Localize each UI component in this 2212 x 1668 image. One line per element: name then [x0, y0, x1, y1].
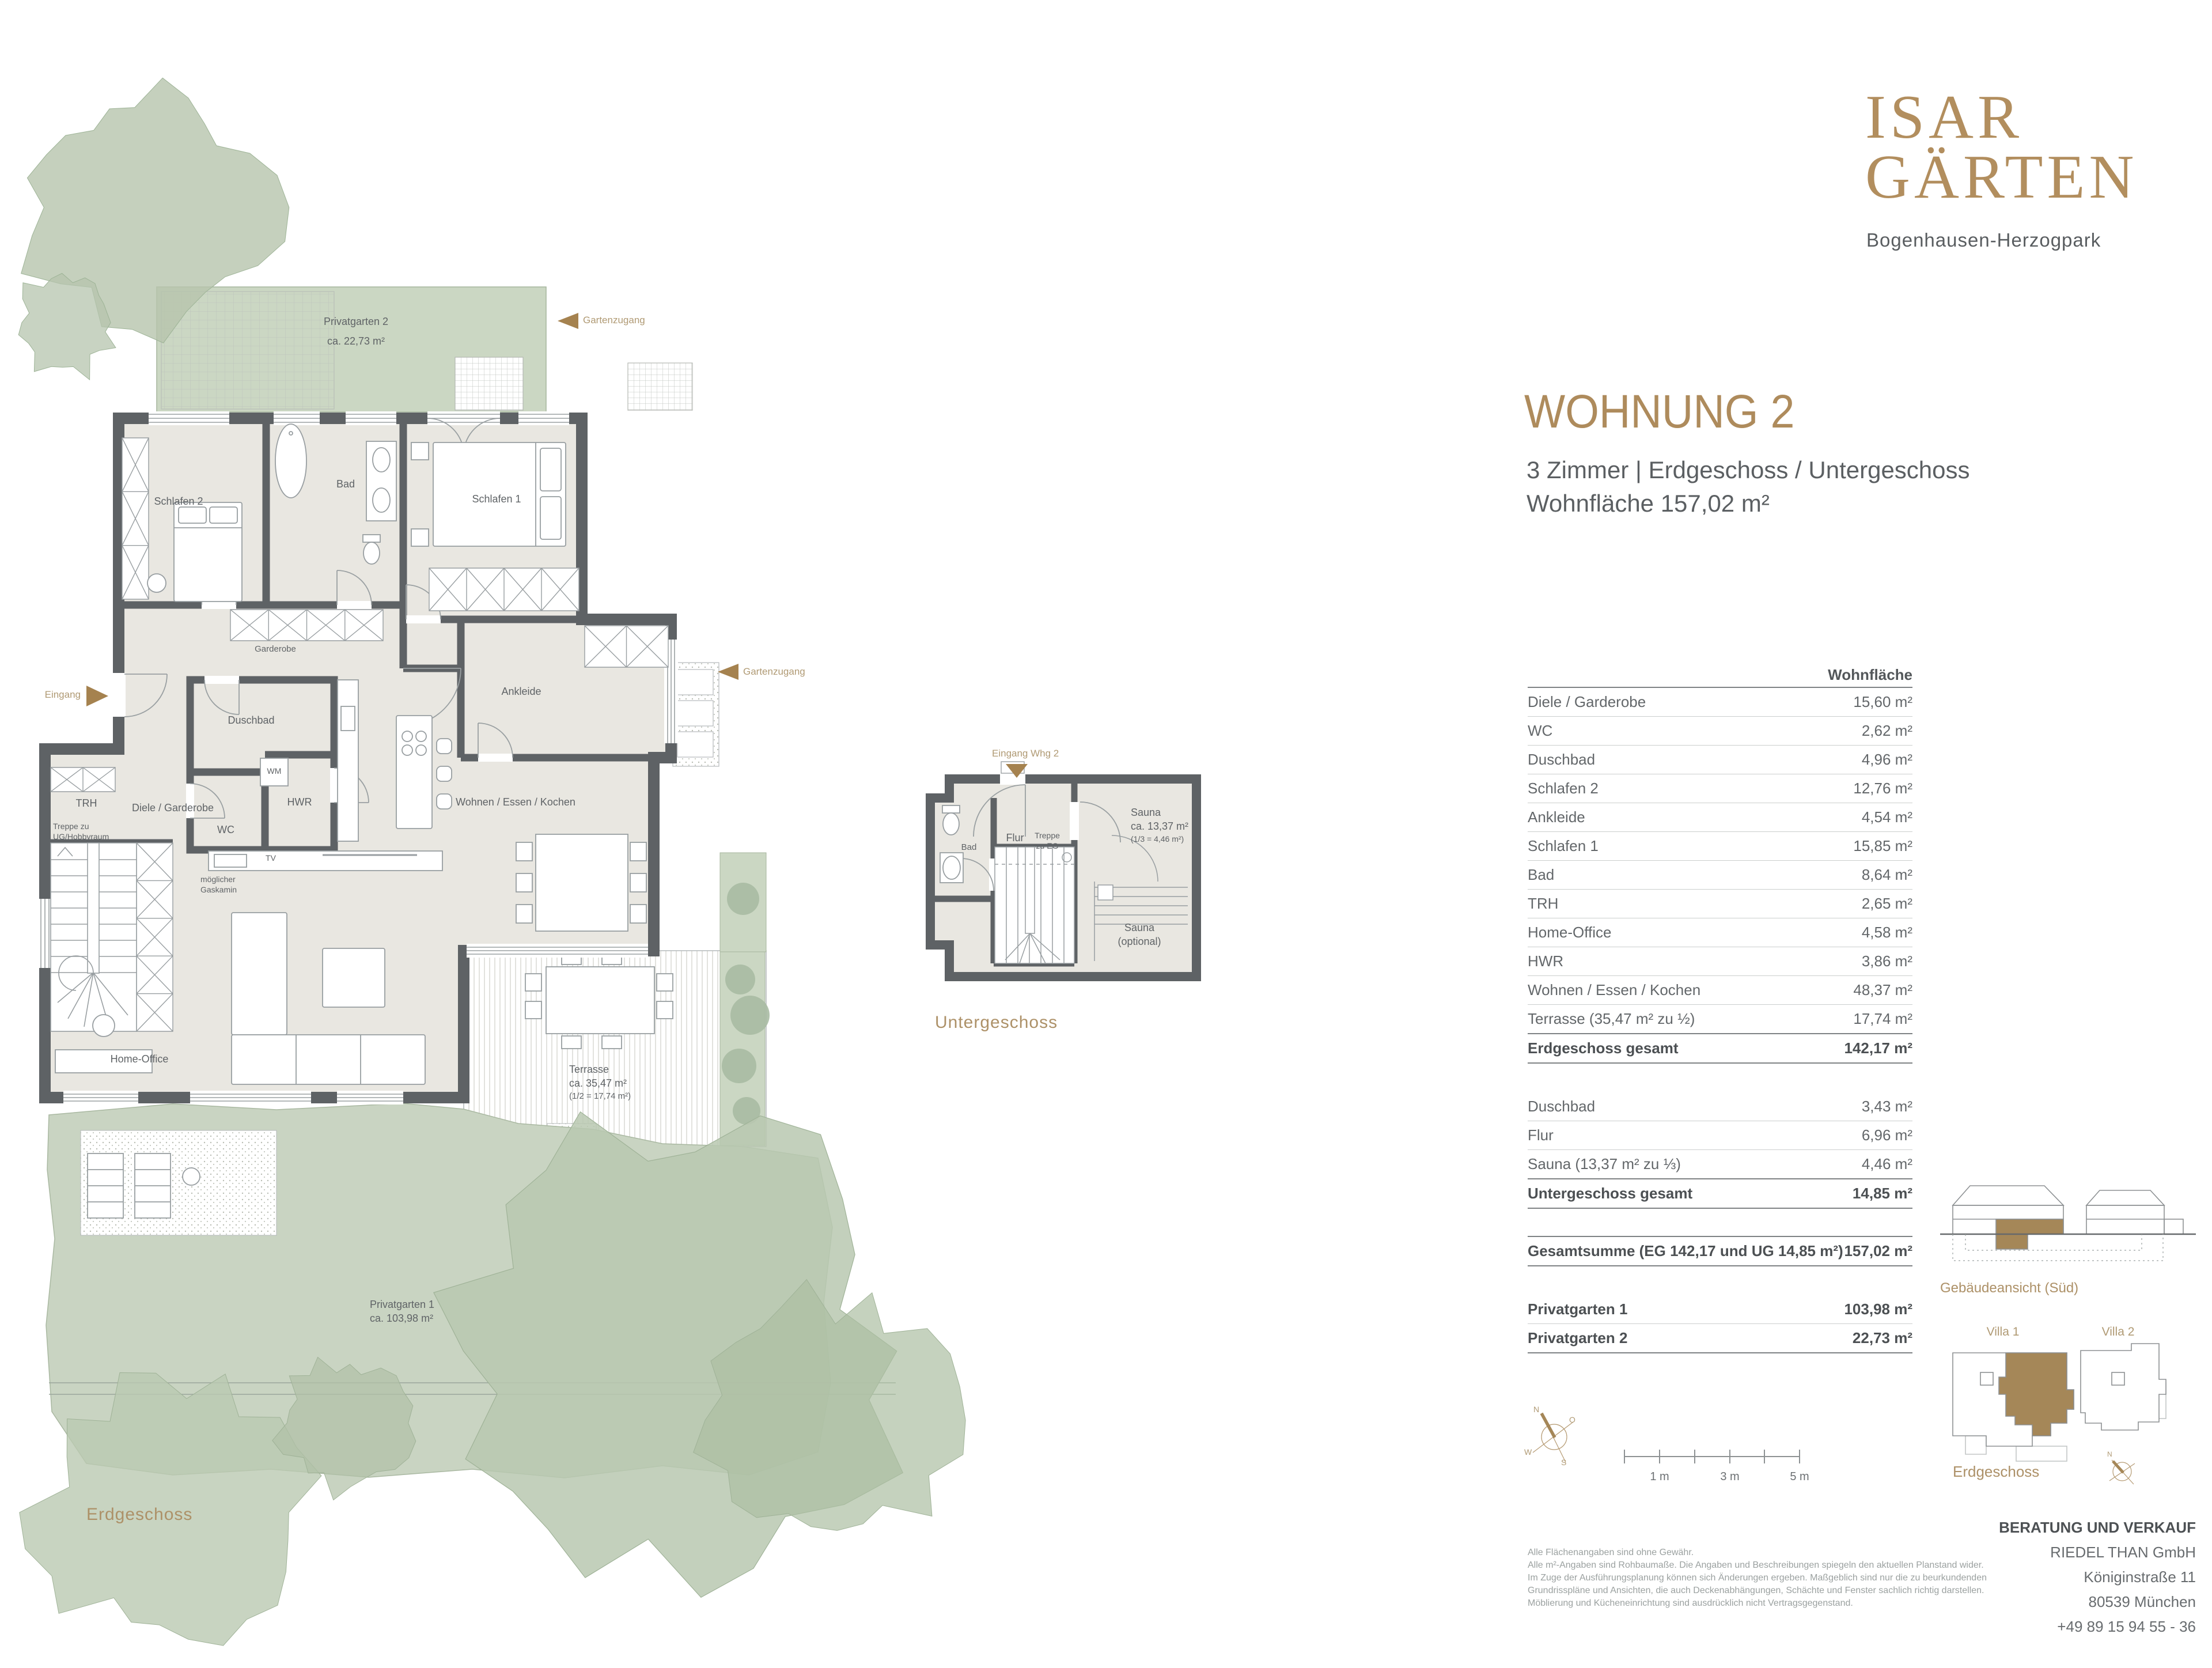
brand-location: Bogenhausen-Herzogpark: [1866, 229, 2101, 251]
compass-n-label: N: [1533, 1405, 1539, 1414]
disclaimer-line: Alle Flächenangaben sind ohne Gewähr.: [1528, 1546, 1987, 1559]
compass-s-label: S: [1561, 1458, 1566, 1467]
sum-label: Gesamtsumme (EG 142,17 und UG 14,85 m²): [1528, 1242, 1843, 1260]
room-label-wm: WM: [267, 766, 282, 776]
area-table-eg-section: Diele / Garderobe 15,60 m² WC 2,62 m² Du…: [1528, 688, 1912, 1064]
compass-o-label: O: [1569, 1415, 1575, 1424]
room-area: 17,74 m²: [1853, 1010, 1912, 1028]
table-row: Gesamtsumme (EG 142,17 und UG 14,85 m²) …: [1528, 1236, 1912, 1266]
ug-saunaopt-label-1: Sauna: [1124, 922, 1154, 934]
room-label: Erdgeschoss gesamt: [1528, 1039, 1679, 1057]
room-label: HWR: [1528, 952, 1563, 970]
scale-label-5m: 5 m: [1790, 1470, 1809, 1484]
disclaimer-block: Alle Flächenangaben sind ohne Gewähr.All…: [1528, 1546, 1987, 1610]
unit-ug-highlight: [1996, 1234, 2028, 1249]
room-label: Duschbad: [1528, 1098, 1595, 1115]
contact-city: 80539 München: [1999, 1590, 2196, 1614]
room-label-bad: Bad: [336, 478, 355, 490]
contact-street: Königinstraße 11: [1999, 1565, 2196, 1590]
room-label: TRH: [1528, 895, 1558, 913]
room-area: 15,85 m²: [1853, 837, 1912, 855]
room-label-garderobe: Garderobe: [255, 644, 296, 654]
page-title: WOHNUNG 2: [1524, 385, 1794, 439]
privatgarten1-label: Privatgarten 1: [370, 1299, 434, 1311]
site-caption: Erdgeschoss: [1953, 1463, 2039, 1481]
ug-sauna-label-2: ca. 13,37 m²: [1131, 820, 1188, 833]
eingang-arrow-icon: [86, 686, 108, 706]
contact-company: RIEDEL THAN GmbH: [1999, 1540, 2196, 1565]
brochure-page: { "logo": { "line1": "ISAR", "line2": "G…: [0, 0, 2212, 1668]
room-area: 4,58 m²: [1862, 924, 1912, 941]
site-compass-n-label: N: [2107, 1451, 2112, 1459]
unit-summary-line1: 3 Zimmer | Erdgeschoss / Untergeschoss: [1527, 456, 1970, 484]
table-row: Schlafen 2 12,76 m²: [1528, 774, 1912, 803]
room-label-wc: WC: [217, 824, 234, 836]
room-area: 3,86 m²: [1862, 952, 1912, 970]
table-row: Diele / Garderobe 15,60 m²: [1528, 688, 1912, 717]
gartenzugang-mid-arrow-icon: [718, 664, 738, 680]
table-row: Home-Office 4,58 m²: [1528, 918, 1912, 947]
room-area: 15,60 m²: [1853, 693, 1912, 711]
area-table-ug-section: Duschbad 3,43 m² Flur 6,96 m² Sauna (13,…: [1528, 1092, 1912, 1209]
unit-eg-highlight: [1996, 1219, 2063, 1234]
room-label-schlafen2: Schlafen 2: [154, 496, 203, 508]
treppe-ug-label-1: Treppe zu: [53, 822, 89, 831]
room-label: Sauna (13,37 m² zu ⅓): [1528, 1155, 1681, 1173]
stairs-eg: [51, 843, 137, 1031]
gartenzugang-top-label: Gartenzugang: [583, 315, 645, 326]
privatgarten2-label: Privatgarten 2: [324, 316, 388, 328]
gartenzugang-top-arrow-icon: [558, 313, 578, 329]
room-area: 4,54 m²: [1862, 808, 1912, 826]
column-header-wohnflaeche: Wohnfläche: [1828, 666, 1912, 684]
contact-heading: BERATUNG UND VERKAUF: [1999, 1515, 2196, 1540]
room-label: WC: [1528, 722, 1552, 740]
gaskamin-label-2: Gaskamin: [200, 885, 237, 894]
disclaimer-line: Alle m²-Angaben sind Rohbaumaße. Die Ang…: [1528, 1559, 1987, 1572]
ug-saunaopt-label-2: (optional): [1118, 936, 1161, 948]
room-label-wohnen: Wohnen / Essen / Kochen: [456, 796, 575, 808]
sum-area: 157,02 m²: [1844, 1242, 1912, 1260]
room-label-diele: Diele / Garderobe: [132, 802, 214, 814]
brand-logo-line1: ISAR: [1865, 86, 2023, 149]
room-label-ankleide: Ankleide: [501, 686, 541, 698]
area-table-garden-section: Privatgarten 1 103,98 m² Privatgarten 2 …: [1528, 1295, 1912, 1353]
privatgarten2-area-label: ca. 22,73 m²: [327, 335, 385, 347]
compass-w-label: W: [1524, 1447, 1532, 1457]
room-label: Flur: [1528, 1126, 1554, 1144]
room-area: 6,96 m²: [1862, 1126, 1912, 1144]
elevation-caption: Gebäudeansicht (Süd): [1940, 1280, 2078, 1296]
garden-area: 103,98 m²: [1844, 1300, 1912, 1318]
table-row: Duschbad 3,43 m²: [1528, 1092, 1912, 1121]
disclaimer-line: Grundrisspläne und Ansichten, die auch D…: [1528, 1584, 1987, 1597]
villa2-label: Villa 2: [2102, 1325, 2135, 1339]
table-row: Flur 6,96 m²: [1528, 1121, 1912, 1150]
ug-treppe-label-2: zu EG: [1036, 841, 1059, 850]
room-label: Ankleide: [1528, 808, 1585, 826]
room-label-duschbad: Duschbad: [228, 714, 274, 727]
ug-room-label-bad: Bad: [961, 842, 977, 852]
contact-phone: +49 89 15 94 55 - 36: [1999, 1614, 2196, 1639]
ug-eingang-label: Eingang Whg 2: [992, 748, 1059, 759]
ug-caption: Untergeschoss: [935, 1013, 1058, 1033]
scale-label-1m: 1 m: [1650, 1470, 1669, 1484]
room-label-trh: TRH: [76, 797, 97, 810]
room-label: Duschbad: [1528, 751, 1595, 769]
ug-room-label-flur: Flur: [1006, 832, 1024, 844]
table-row: Schlafen 1 15,85 m²: [1528, 832, 1912, 861]
treppe-ug-label-2: UG/Hobbyraum: [53, 832, 109, 841]
room-label: Untergeschoss gesamt: [1528, 1185, 1692, 1202]
scale-label-3m: 3 m: [1720, 1470, 1739, 1484]
garden-label: Privatgarten 1: [1528, 1300, 1627, 1318]
room-area: 3,43 m²: [1862, 1098, 1912, 1115]
room-label: Schlafen 2: [1528, 780, 1599, 797]
ug-treppe-label-1: Treppe: [1035, 831, 1060, 840]
area-table-header: Wohnfläche: [1528, 663, 1912, 688]
brand-logo-line2: GÄRTEN: [1865, 146, 2138, 209]
room-area: 8,64 m²: [1862, 866, 1912, 884]
garden-label: Privatgarten 2: [1528, 1329, 1627, 1347]
terrasse-label-3: (1/2 = 17,74 m²): [569, 1091, 631, 1101]
room-area: 2,62 m²: [1862, 722, 1912, 740]
privatgarten1-area-label: ca. 103,98 m²: [370, 1313, 433, 1325]
table-row: TRH 2,65 m²: [1528, 890, 1912, 918]
room-label: Wohnen / Essen / Kochen: [1528, 981, 1700, 999]
room-label: Diele / Garderobe: [1528, 693, 1646, 711]
eingang-label: Eingang: [23, 689, 81, 701]
room-label-homeoffice: Home-Office: [111, 1053, 169, 1065]
villa1-label: Villa 1: [1987, 1325, 2020, 1339]
disclaimer-line: Möblierung und Kücheneinrichtung sind au…: [1528, 1597, 1987, 1610]
room-area: 12,76 m²: [1853, 780, 1912, 797]
table-row: Bad 8,64 m²: [1528, 861, 1912, 890]
room-label: Terrasse (35,47 m² zu ½): [1528, 1010, 1695, 1028]
room-area: 142,17 m²: [1844, 1039, 1912, 1057]
table-row: WC 2,62 m²: [1528, 717, 1912, 746]
terrasse-label-1: Terrasse: [569, 1064, 609, 1076]
ug-sauna-label-1: Sauna: [1131, 807, 1161, 819]
compass-small-icon: [2109, 1460, 2135, 1484]
table-row: HWR 3,86 m²: [1528, 947, 1912, 976]
room-label-schlafen1: Schlafen 1: [472, 493, 521, 505]
area-table-sum-section: Gesamtsumme (EG 142,17 und UG 14,85 m²) …: [1528, 1236, 1912, 1266]
eg-floorplan: [18, 78, 965, 1646]
room-area: 4,46 m²: [1862, 1155, 1912, 1173]
table-row: Ankleide 4,54 m²: [1528, 803, 1912, 832]
table-row: Duschbad 4,96 m²: [1528, 746, 1912, 774]
table-row: Erdgeschoss gesamt 142,17 m²: [1528, 1033, 1912, 1064]
table-row: Terrasse (35,47 m² zu ½) 17,74 m²: [1528, 1005, 1912, 1034]
table-row: Sauna (13,37 m² zu ⅓) 4,46 m²: [1528, 1150, 1912, 1179]
ug-sauna-label-3: (1/3 = 4,46 m²): [1131, 834, 1184, 844]
room-label: Bad: [1528, 866, 1554, 884]
elevation-diagram: [1940, 1186, 2196, 1261]
room-area: 14,85 m²: [1853, 1185, 1912, 1202]
room-area: 48,37 m²: [1853, 981, 1912, 999]
compass-icon: [1533, 1413, 1573, 1462]
garden-area: 22,73 m²: [1853, 1329, 1912, 1347]
unit-summary-line2: Wohnfläche 157,02 m²: [1527, 490, 1770, 517]
area-table: Wohnfläche Diele / Garderobe 15,60 m² WC…: [1528, 663, 1912, 1353]
eg-caption: Erdgeschoss: [86, 1505, 192, 1525]
room-area: 2,65 m²: [1862, 895, 1912, 913]
table-row: Wohnen / Essen / Kochen 48,37 m²: [1528, 976, 1912, 1005]
contact-block: BERATUNG UND VERKAUF RIEDEL THAN GmbH Kö…: [1999, 1515, 2196, 1639]
terrasse-label-2: ca. 35,47 m²: [569, 1077, 627, 1090]
stairs-ug: [995, 847, 1074, 963]
room-label: Home-Office: [1528, 924, 1611, 941]
table-row: Privatgarten 1 103,98 m²: [1528, 1295, 1912, 1324]
gartenzugang-mid-label: Gartenzugang: [743, 666, 805, 678]
table-row: Untergeschoss gesamt 14,85 m²: [1528, 1178, 1912, 1209]
disclaimer-line: Im Zuge der Ausführungsplanung können si…: [1528, 1572, 1987, 1584]
gaskamin-label-1: möglicher: [200, 875, 236, 884]
tv-label: TV: [266, 853, 276, 863]
room-area: 4,96 m²: [1862, 751, 1912, 769]
room-label-hwr: HWR: [287, 796, 312, 808]
scale-bar: [1624, 1450, 1800, 1463]
room-label: Schlafen 1: [1528, 837, 1599, 855]
table-row: Privatgarten 2 22,73 m²: [1528, 1324, 1912, 1353]
